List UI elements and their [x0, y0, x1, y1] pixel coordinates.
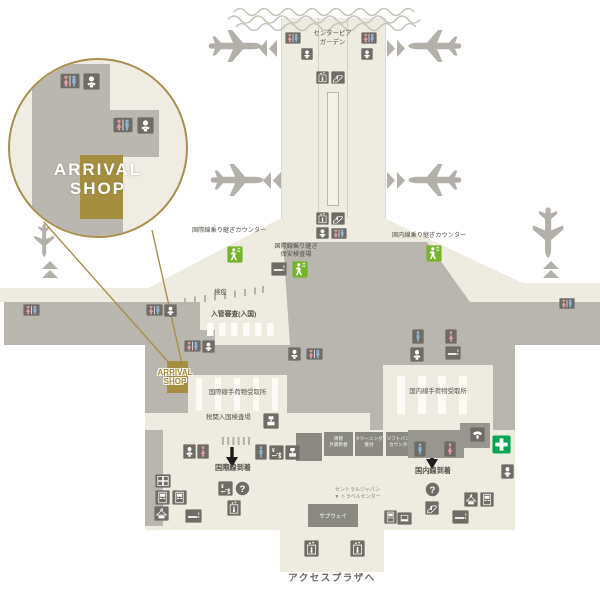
- cleaning-label-2: 受付: [355, 442, 383, 448]
- airplane-icon-nw1: [209, 30, 262, 62]
- label-immigration: 入管審査(入国): [211, 311, 256, 319]
- east-secure-band: [448, 302, 600, 345]
- west-edge-strip: [145, 430, 163, 526]
- callout-shop-name-line1: ARRIVAL: [10, 160, 186, 180]
- cleaning-box: クリーニング 受付: [355, 432, 383, 456]
- arrival-shop-callout: ARRIVAL SHOP: [8, 58, 188, 238]
- label-center-pier-garden-2: ガーデン: [281, 39, 384, 46]
- airplane-icon-east: [533, 207, 563, 258]
- subway-box: サブウェイ: [308, 504, 358, 527]
- airport-arrival-map: 両替 外貨両替 クリーニング 受付 ソフトバンク カウンター サブウェイ: [0, 0, 600, 600]
- chevrons-up-west-icon: [42, 261, 58, 278]
- chevrons-up-east-icon: [543, 261, 559, 278]
- corridor-wall-right: [347, 18, 348, 218]
- south-tongue: [280, 530, 384, 572]
- label-quarantine: 検疫: [214, 289, 227, 296]
- exchange-label-2: 外貨両替: [324, 442, 353, 448]
- airplane-icon-nw2: [211, 164, 264, 196]
- moving-walkway: [327, 92, 339, 206]
- map-shop-label-line2: SHOP: [145, 377, 205, 386]
- chevr ons-right-2-icon: [387, 172, 405, 189]
- label-intl-arrivals: 国際線到着: [203, 464, 263, 472]
- airplane-icon-ne1: [408, 30, 461, 62]
- label-central-japan-1: セントラルジャパン: [325, 488, 390, 494]
- chevrons-left-2-icon: [263, 172, 281, 189]
- callout-icons: [10, 60, 186, 236]
- label-intl-transfer-security-1: 国際線乗り継ぎ: [256, 243, 336, 250]
- label-access-plaza: アクセスプラザへ: [272, 574, 392, 585]
- label-customs-inspection: 税関入国検査場: [206, 414, 251, 421]
- label-center-pier-garden-1: センターピア: [281, 30, 384, 37]
- callout-restroom-2-icon: [113, 116, 133, 134]
- callout-baby-1-icon: [83, 73, 100, 90]
- chevrons-left-1-icon: [259, 40, 277, 57]
- shop-icon-patch: [170, 330, 215, 346]
- callout-restroom-1-icon: [60, 72, 80, 90]
- dom-baggage-hall: [383, 365, 493, 430]
- subway-label: サブウェイ: [319, 512, 347, 520]
- map-shop-label-line1: ARRIVAL: [145, 368, 205, 377]
- corridor-wall-left: [318, 18, 319, 218]
- label-dom-baggage-claim: 国内線手荷物受取所: [383, 388, 493, 395]
- label-dom-transfer-counter: 国内線乗り継ぎカウンター: [392, 232, 466, 239]
- label-intl-baggage-claim: 国際線手荷物受取所: [188, 389, 287, 396]
- phone-box: [460, 423, 490, 448]
- exchange-box: 両替 外貨両替: [324, 432, 353, 456]
- airplane-icon-ne2: [408, 164, 461, 196]
- chevrons-right-1-icon: [387, 40, 405, 57]
- label-intl-transfer-security-2: 保安検査場: [256, 251, 336, 258]
- label-dom-arrivals: 国内線到着: [403, 467, 463, 475]
- service-box-blank: [296, 433, 322, 461]
- callout-shop-name-line2: SHOP: [10, 179, 186, 199]
- dom-services-box: [408, 430, 464, 458]
- callout-baby-2-icon: [137, 117, 154, 134]
- label-intl-transfer-counter: 国際線乗り継ぎカウンター: [192, 227, 266, 234]
- label-central-japan-2: ▼ トラベルセンター: [325, 495, 390, 501]
